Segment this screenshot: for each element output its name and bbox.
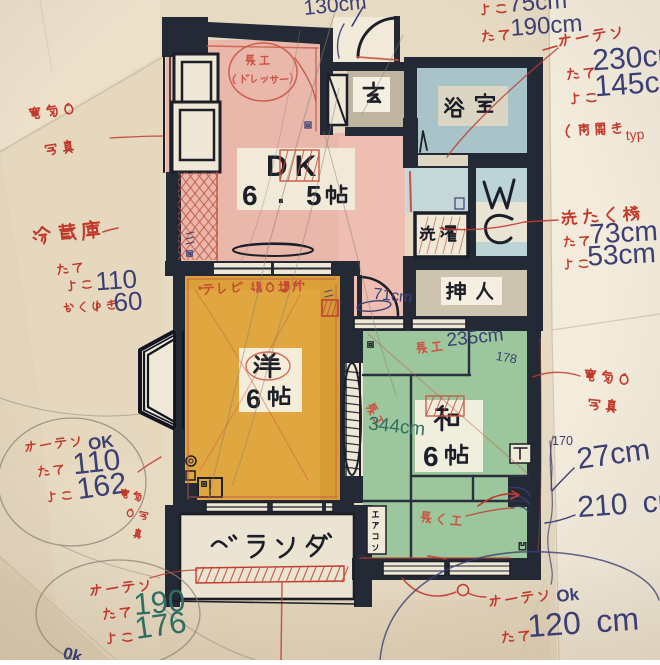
svg-text:Ok: Ok — [555, 585, 580, 606]
svg-text:cm: cm — [595, 600, 640, 639]
svg-text:typ: typ — [625, 126, 645, 143]
svg-text:210: 210 — [576, 488, 628, 524]
svg-text:cm: cm — [641, 484, 660, 520]
svg-text:・: ・ — [192, 280, 209, 299]
svg-text:60: 60 — [112, 285, 143, 317]
svg-text:6: 6 — [423, 441, 439, 472]
svg-text:190cm: 190cm — [510, 10, 584, 42]
svg-text:6: 6 — [242, 180, 258, 211]
svg-text:162: 162 — [75, 467, 129, 507]
svg-text:170: 170 — [552, 434, 573, 448]
svg-text:176: 176 — [132, 604, 188, 646]
svg-text:5: 5 — [306, 180, 322, 211]
svg-text:120: 120 — [526, 605, 582, 645]
svg-text:145cm: 145cm — [593, 64, 660, 103]
svg-text:53cm: 53cm — [587, 237, 657, 272]
